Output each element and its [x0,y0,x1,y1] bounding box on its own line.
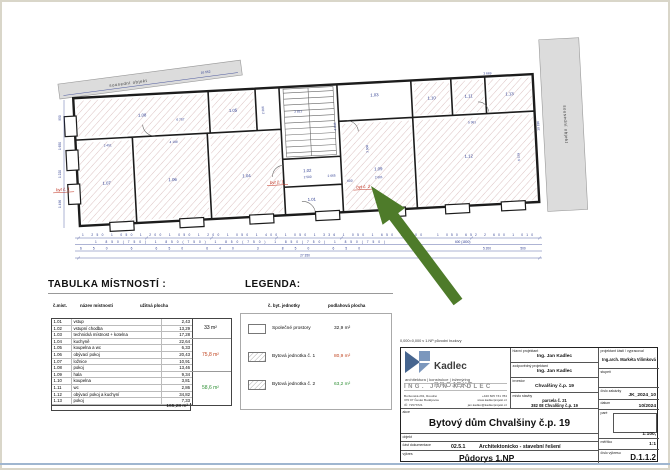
room-name-cell: obývací pokoj a kuchyní [72,392,162,398]
table-title: TABULKA MÍSTNOSTÍ : [48,279,166,290]
dim-label: 3 821 [294,109,302,113]
room-area-cell: 17,28 [162,332,192,338]
field-label: číslo zakázky [601,389,622,393]
table-row: 1.11 wc 2,86 [52,385,192,392]
room-area [76,94,208,137]
flat2-label: byt č. 2 [356,184,371,190]
field-akce: akce Bytový dům Chvalšiny č.p. 19 [401,409,598,434]
buttress [180,218,204,228]
field-value: Ing. Jan Kadlec [511,354,598,359]
legend-swatch-flat1 [248,352,266,362]
room-label: 1.01 [308,197,317,202]
dim-total: 27 350 [300,254,310,258]
table-row: 1.10 koupelna 3,81 [52,378,192,385]
table-row: 1.08 pokoj 13,46 [52,365,192,372]
table-row: 1.12 obývací pokoj a kuchyní 34,82 [52,392,192,399]
field-label: paré [601,411,608,415]
field-label: stupeň [601,370,612,374]
rooms-flat1 [76,90,283,222]
dim-label: 2 665 [328,174,336,178]
section-divider [48,293,393,294]
flat1-label: byt č. 1 [56,186,71,192]
door-arcs [142,101,493,222]
table-row: 1.01 vstup 2,43 [52,319,192,326]
buttress [68,184,81,205]
room-labels: 1.08 1.05 1.07 1.06 1.04 1.03 1.02 1.01 … [98,85,519,213]
legend-header-unit: č. byt. jednotky [268,303,300,308]
room-name-cell: obývací pokoj [72,352,162,358]
dim-label: 3 669 [483,71,491,75]
field-label: část dokumentace [403,443,431,447]
group-area-common: 33 m² [190,319,231,339]
room-label: 1.11 [464,93,473,98]
room-label: 1.05 [229,108,238,113]
room-area-cell: 13,29 [162,326,192,332]
legend-swatch-flat2 [248,380,266,390]
dim-label: 2 601 [375,175,383,179]
brand-tagline: architektura | konstrukce | inženýring [405,377,470,382]
room-name-cell: kuchyně [72,339,162,345]
table-row: 1.04 kuchyně 22,64 [52,339,192,346]
dim-label: 500 [520,247,526,251]
field-value: 382 08 Chvalšiny č.p. 19 [511,403,598,408]
group-area-flat1: 75,8 m² [190,339,231,372]
buttress [381,207,405,217]
room-area-cell: 13,46 [162,365,192,371]
dim-label: 950 [58,115,62,121]
room-area-cell: 20,43 [162,352,192,358]
room-area [210,132,283,216]
legend-area: 80,9 m² [334,354,350,359]
field-label: datum [601,401,611,405]
highlight-arrow [371,186,462,305]
title-block: Kadlec PROJEKT architektura | konstrukce… [400,347,658,462]
room-area-cell: 34,82 [162,392,192,398]
field-value: JK_2024_10 [599,393,659,398]
buttress [110,221,134,231]
dim-top: 16 552 [201,70,211,75]
room-number-cell: 1.04 [52,339,72,345]
room-label: 1.07 [102,180,111,185]
room-area-cell: 22,64 [162,339,192,345]
room-label: 1.06 [168,177,177,182]
top-dim-line [63,73,237,96]
table-row: 1.09 hala 9,34 [52,372,192,379]
field-cislo-vykresu: číslo výkresu D.1.1.2 [598,450,659,463]
dim-label: 4 198 [170,140,178,144]
table-header-name: název místnosti [80,303,113,308]
scale-value-2: 1:1 [649,442,656,447]
field-pare: paré 1:100, [598,410,659,439]
field-label: místo stavby [513,394,533,398]
room-table: 1.01 vstup 2,43 1.02 vstupní chodba 13,2… [51,318,193,406]
room-label: 1.04 [242,173,251,178]
dim-label: 600 [347,179,353,183]
room-label: 1.09 [374,166,383,171]
room-area [414,81,451,115]
table-header-area: užitná plocha [140,303,168,308]
flat1-underline [267,185,288,186]
buttress [501,201,525,211]
buttress [64,116,77,137]
drawing-sheet: sousední objekt 16 552 sousední objekt 1… [0,0,670,470]
contact-block: Boršovská 291, Roudné+420 605 731 784 37… [404,394,507,407]
field-investor: investor Chvalšiny č.p. 19 [511,378,598,393]
logo-cell: Kadlec PROJEKT architektura | konstrukce… [401,348,511,409]
room-name-cell: technická místnost + kotelna [72,332,162,338]
dim-chain: 1 850(750) 1 850(750) 1 850(750) 1 850(7… [95,240,385,244]
dim-chain: 1 250 1 050 1 200 1 050 1 200 1 050 1 40… [82,233,422,237]
neighbor-strip-top: sousední objekt 16 552 [58,60,242,99]
dim-label: 1 650 [58,142,62,150]
scale-value-1: 1:100, [642,432,656,437]
neighbor-top-label: sousední objekt [109,78,148,88]
field-projektant-casti: projektant části / vypracoval Ing.arch. … [598,348,659,369]
room-area [454,80,485,113]
room-area-cell: 3,81 [162,378,192,384]
table-row: 1.06 obývací pokoj 20,43 [52,352,192,359]
sheet-footer-line [0,463,670,465]
buttress [315,210,339,220]
project-title: Bytový dům Chvalšiny č.p. 19 [401,418,598,429]
staircase [283,87,336,158]
legend-swatch-common [248,324,266,334]
room-area-cell: 2,43 [162,319,192,325]
neighbor-strip-right: sousední objekt 10 196 [532,38,588,212]
room-area-cell: 9,34 [162,372,192,378]
room-label: 1.03 [370,92,379,97]
flat-labels: byt č. 1 byt č. 1 byt č. 2 [53,171,375,206]
room-area-cell: 2,86 [162,385,192,391]
room-label: 1.12 [464,153,473,158]
buttress [66,150,79,171]
room-number-cell: 1.09 [52,372,72,378]
doc-section-name: Architektonicko - stavební řešení [479,444,561,450]
contact-email: jan.kadlec@kadlecprojekt.cz [468,403,507,407]
room-number-cell: 1.11 [52,385,72,391]
room-number-cell: 1.05 [52,345,72,351]
room-number-cell: 1.08 [52,365,72,371]
contact-ic: IČ: 71573721 [404,403,423,407]
doc-section-number: 02.5.1 [451,444,465,450]
room-area-cell: 10,91 [162,359,192,365]
legend-name: Bytová jednotka č. 1 [272,354,315,359]
neighbor-strip-shape [58,60,242,99]
elevation-note: 0,000=0,000 v 1.NP původní budovy [400,339,461,343]
room-area [211,92,255,130]
group-area-column: 33 m² 75,8 m² 58,6 m² [190,318,232,406]
brand-name: Kadlec [434,361,467,372]
room-name-cell: koupelna a wc [72,345,162,351]
stair-steps [283,87,336,158]
field-label: investor [513,379,525,383]
field-objekt: objekt [401,434,598,442]
dim-ticks [77,237,541,260]
dim-label: 6 379 [517,153,521,161]
room-area [488,77,533,111]
room-label: 1.10 [427,95,436,100]
room-area [416,114,537,206]
room-number-cell: 1.07 [52,359,72,365]
field-zodpovedny-projektant: zodpovědný projektant Ing. Jan Kadlec [511,363,598,378]
buttress [250,214,274,224]
room-number-cell: 1.10 [52,378,72,384]
legend-area: 63,2 m² [334,382,350,387]
room-number-cell: 1.01 [52,319,72,325]
room-area [79,140,135,223]
dim-label: 3 500 [365,145,369,153]
field-label: akce [403,410,410,414]
dimension-block: 1 250 1 050 1 200 1 050 1 200 1 050 1 40… [58,100,542,260]
building: sousední objekt 10 196 [46,38,587,238]
room-number-cell: 1.06 [52,352,72,358]
dim-label: 5 200 [483,247,491,251]
wall-buttresses [64,93,525,234]
table-row: 1.02 vstupní chodba 13,29 [52,326,192,333]
legend-name: Společné prostory [272,326,311,331]
room-name-cell: wc [72,385,162,391]
interior-walls [73,74,539,226]
neighbor-strip-shape [539,38,588,212]
pare-box [613,413,657,433]
field-cast-dokumentace: část dokumentace 02.5.1 Architektonicko … [401,442,598,451]
legend-header-area: podlahová plocha [328,303,365,308]
field-value: Ing. Jan Kadlec [511,369,598,374]
dim-label: 4 844 [333,122,337,130]
field-label: objekt [403,435,412,439]
legend-title: LEGENDA: [245,279,300,290]
table-header-no: č.míst. [53,303,67,308]
field-misto-stavby: místo stavby parcela č. 21 382 08 Chvalš… [511,393,598,409]
field-label: hlavní projektant [513,349,539,353]
room-number-cell: 1.03 [52,332,72,338]
legend-name: Bytová jednotka č. 2 [272,382,315,387]
room-number-cell: 1.02 [52,326,72,332]
flat2-underline [353,189,374,190]
room-area-cell: 6,33 [162,345,192,351]
room-name-cell: hala [72,372,162,378]
group-area-flat2: 58,6 m² [190,372,231,405]
room-label: 1.08 [138,112,147,117]
field-cislo-zakazky: číslo zakázky JK_2024_10 [598,388,659,400]
building-outline [73,74,539,226]
legend-area: 32,9 m² [334,326,350,331]
drawing-number: D.1.1.2 [630,453,656,462]
field-label: měřítko [601,440,613,444]
dim-label: 2 451 [104,143,112,147]
dim-right: 10 196 [536,121,541,131]
field-label: zodpovědný projektant [513,364,548,368]
drawing-title: Půdorys 1.NP [459,453,514,463]
rooms-flat2 [340,77,537,210]
neighbor-right-label: sousední objekt [562,105,569,144]
dim-chain: 600 (1800) [455,240,470,244]
buttress [445,204,469,214]
dim-chain: 1 050 652 2 600 1 010 [437,233,533,237]
field-hlavni-projektant: hlavní projektant Ing. Jan Kadlec [511,348,598,363]
field-vykres: výkres Půdorys 1.NP [401,451,598,463]
room-name-cell: koupelna [72,378,162,384]
dim-label: 5 361 [468,120,476,124]
field-meritko: měřítko 1:1 [598,439,659,450]
field-label: výkres [403,452,413,456]
field-value: Ing.arch. Markéta Vilímková [599,357,659,362]
table-row: 1.03 technická místnost + kotelna 17,28 [52,332,192,339]
flat1-underline [53,192,74,193]
dim-label: 2 266 [261,106,265,114]
table-row: 1.07 ložnice 10,91 [52,359,192,366]
field-label: projektant části / vypracoval [601,349,644,353]
room-name-cell: vstup [72,319,162,325]
dim-label: 2 500 [304,175,312,179]
room-name-cell: ložnice [72,359,162,365]
interior-dimensions: 6 757 2 451 4 198 2 500 2 665 3 821 4 84… [101,70,522,196]
table-row: 1.05 koupelna a wc 6,33 [52,345,192,352]
dim-label: 1 496 [58,200,62,208]
table-total: 165,28 m² [51,403,191,411]
stair-outline [283,87,336,158]
field-value: Chvalšiny č.p. 19 [511,384,598,389]
field-datum: datum 10/2024 [598,400,659,410]
room-name-cell: pokoj [72,365,162,371]
room-label: 1.02 [303,168,312,173]
room-number-cell: 1.12 [52,392,72,398]
room-area [342,121,415,210]
dim-chain: 650 6 650 640 3 850 650 [80,247,360,251]
kadlec-logo-icon [405,351,431,377]
room-area [135,136,209,220]
field-label: číslo výkresu [601,451,621,455]
dim-label: 6 757 [176,117,184,121]
field-stupen: stupeň [598,369,659,388]
flat1-label: byt č. 1 [270,179,285,185]
room-label: 1.13 [505,91,514,96]
architect-name: ING. JAN KADLEC [404,383,507,391]
room-name-cell: vstupní chodba [72,326,162,332]
dim-label: 1 220 [58,170,62,178]
